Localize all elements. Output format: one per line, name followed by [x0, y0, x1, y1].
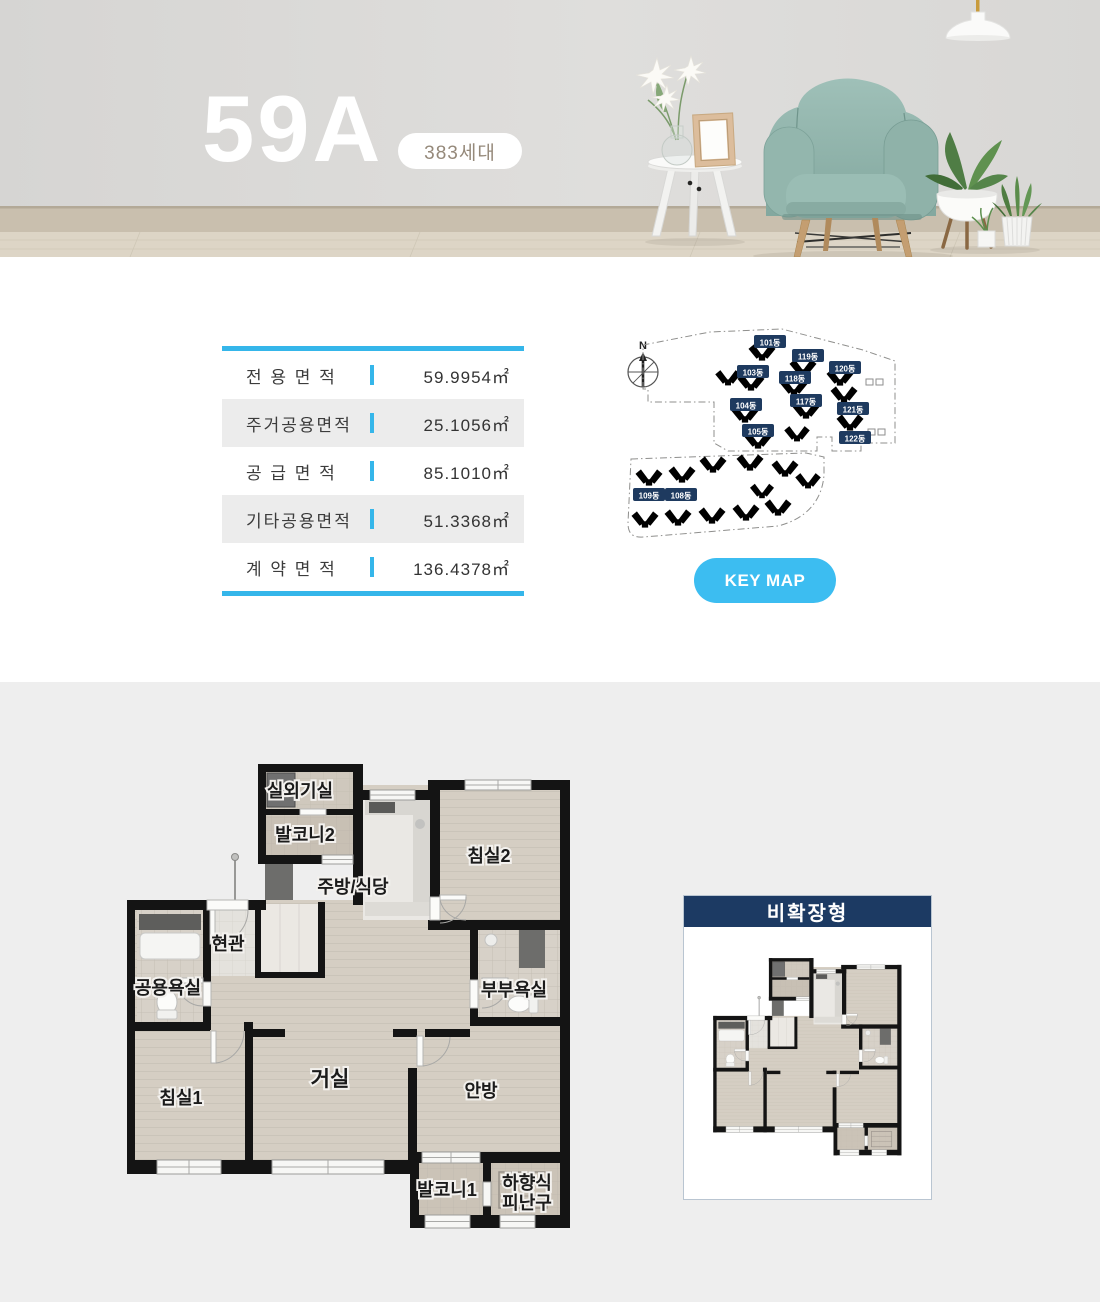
table-row: 주거공용면적 25.1056㎡ [222, 399, 524, 447]
hero-banner: 59A 383세대 [0, 0, 1100, 257]
table-row: 기타공용면적 51.3368㎡ [222, 495, 524, 543]
divider-bar [370, 413, 374, 433]
building-badge: 120동 [829, 361, 861, 374]
building-badge: 109동 [633, 488, 665, 501]
building-badge: 122동 [839, 431, 871, 444]
building-badge: 117동 [790, 394, 822, 407]
area-value: 59.9954㎡ [384, 363, 510, 388]
area-label: 전 용 면 적 [246, 363, 370, 388]
room-label-entrance: 현관 [211, 934, 245, 954]
building-badge: 121동 [837, 402, 869, 415]
room-label-escape-hatch-line1: 하향식 [502, 1173, 552, 1193]
table-row: 공 급 면 적 85.1010㎡ [222, 447, 524, 495]
room-label-kitchen: 주방/식당 [317, 877, 389, 897]
panel-body [684, 927, 931, 1157]
building-badge: 104동 [730, 398, 762, 411]
building-badge: 101동 [754, 335, 786, 348]
area-value: 25.1056㎡ [384, 411, 510, 436]
room-label-bedroom2: 침실2 [467, 846, 510, 866]
area-label: 공 급 면 적 [246, 459, 370, 484]
svg-text:121동: 121동 [843, 406, 864, 415]
area-table: 전 용 면 적 59.9954㎡ 주거공용면적 25.1056㎡ 공 급 면 적… [222, 346, 524, 596]
building-badge: 103동 [737, 365, 769, 378]
room-label-balcony2: 발코니2 [275, 825, 335, 845]
room-label-escape-hatch-line2: 피난구 [502, 1193, 552, 1213]
svg-text:117동: 117동 [796, 398, 817, 407]
panel-title: 비확장형 [684, 896, 931, 927]
building-badge: 119동 [792, 349, 824, 362]
room-label-master-bedroom: 안방 [464, 1081, 498, 1101]
svg-text:108동: 108동 [671, 492, 692, 501]
floorplan-mini [708, 953, 908, 1157]
floorplan-section: 실외기실 발코니2 주방/식당 침실2 현관 공용욕실 부부욕실 침실1 거실 … [0, 682, 1100, 1302]
building-badge: 105동 [742, 424, 774, 437]
svg-text:105동: 105동 [748, 428, 769, 437]
svg-text:120동: 120동 [835, 365, 856, 374]
non-extended-panel: 비확장형 [683, 895, 932, 1200]
table-row: 전 용 면 적 59.9954㎡ [222, 351, 524, 399]
area-value: 51.3368㎡ [384, 507, 510, 532]
svg-text:122동: 122동 [845, 435, 866, 444]
room-label-outdoor-unit: 실외기실 [267, 781, 333, 801]
hero-photo [0, 0, 1100, 257]
svg-text:101동: 101동 [760, 339, 781, 348]
compass-north-label: N [639, 340, 647, 352]
divider-bar [370, 461, 374, 481]
divider-bar [370, 557, 374, 577]
room-label-bedroom1: 침실1 [159, 1088, 202, 1108]
page: 59A 383세대 전 용 면 적 59.9954㎡ 주거공용면적 25.105… [0, 0, 1100, 1302]
divider-bar [370, 365, 374, 385]
unit-type-title: 59A [202, 82, 383, 176]
table-row: 계 약 면 적 136.4378㎡ [222, 543, 524, 591]
room-label-master-bath: 부부욕실 [481, 980, 547, 1000]
area-label: 기타공용면적 [246, 507, 370, 532]
floorplan-main: 실외기실 발코니2 주방/식당 침실2 현관 공용욕실 부부욕실 침실1 거실 … [115, 752, 585, 1232]
area-value: 85.1010㎡ [384, 459, 510, 484]
building-badge: 108동 [665, 488, 697, 501]
svg-text:104동: 104동 [736, 402, 757, 411]
svg-text:119동: 119동 [798, 353, 819, 362]
building-badge: 118동 [779, 371, 811, 384]
picture-frame [693, 113, 736, 167]
room-label-balcony1: 발코니1 [417, 1180, 477, 1200]
household-count-badge: 383세대 [398, 133, 522, 169]
site-keymap: N [610, 325, 900, 555]
svg-text:103동: 103동 [743, 369, 764, 378]
room-label-living: 거실 [311, 1068, 350, 1091]
area-label: 계 약 면 적 [246, 555, 370, 580]
svg-text:118동: 118동 [785, 375, 806, 384]
divider-bar [370, 509, 374, 529]
area-label: 주거공용면적 [246, 411, 370, 436]
room-label-common-bath: 공용욕실 [135, 978, 201, 998]
svg-text:109동: 109동 [639, 492, 660, 501]
key-map-button[interactable]: KEY MAP [694, 558, 836, 603]
area-value: 136.4378㎡ [384, 555, 510, 580]
